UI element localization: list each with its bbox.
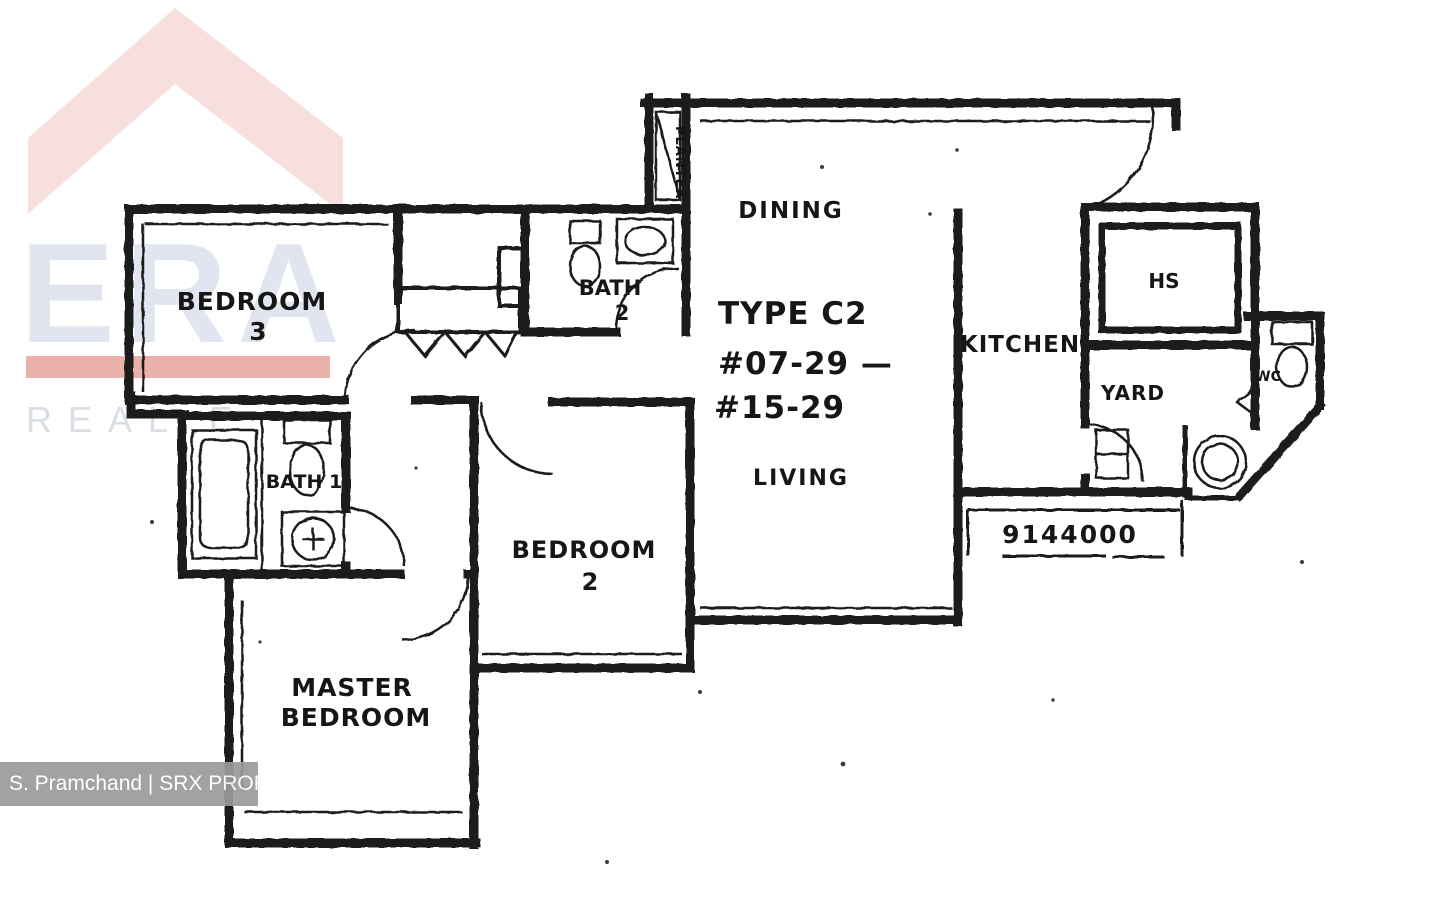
unit-type-label: TYPE C2 xyxy=(718,296,868,332)
credit-text: S. Pramchand | SRX PROPERTY xyxy=(0,772,323,796)
bath2-label-line2: 2 xyxy=(615,301,630,325)
bath2-sink-icon xyxy=(617,219,673,263)
era-red-bar xyxy=(26,356,330,378)
bath1-label: BATH 1 xyxy=(266,471,342,493)
plan-number-label: 9144000 xyxy=(1002,520,1138,549)
hs-label: HS xyxy=(1148,269,1179,293)
bath2-label-line1: BATH xyxy=(579,276,642,300)
bedroom2-label-line1: BEDROOM xyxy=(512,536,657,564)
bedroom3-label-line1: BEDROOM xyxy=(177,287,328,316)
era-roof-icon xyxy=(28,8,343,214)
master-label-line2: BEDROOM xyxy=(281,703,432,732)
corner-basin-icon xyxy=(1194,436,1246,488)
unit-range-line1: #07-29 — xyxy=(718,346,893,382)
bedroom2-label-line2: 2 xyxy=(582,568,599,596)
kitchen-label: KITCHEN xyxy=(960,332,1080,358)
living-label: LIVING xyxy=(753,466,849,491)
unit-range-line2: #15-29 xyxy=(714,390,845,426)
yard-label: YARD xyxy=(1100,381,1165,405)
credit-bar: S. Pramchand | SRX PROPERTY xyxy=(0,762,258,806)
bedroom3-label-line2: 3 xyxy=(249,317,266,346)
wc-label: WC xyxy=(1255,369,1281,385)
planter-label: PLANTER xyxy=(672,126,687,200)
dining-label: DINING xyxy=(738,198,844,224)
floorplan-image: ERA REAL E xyxy=(0,0,1440,902)
bath1-sink-icon xyxy=(282,512,344,566)
master-label-line1: MASTER xyxy=(291,673,413,702)
